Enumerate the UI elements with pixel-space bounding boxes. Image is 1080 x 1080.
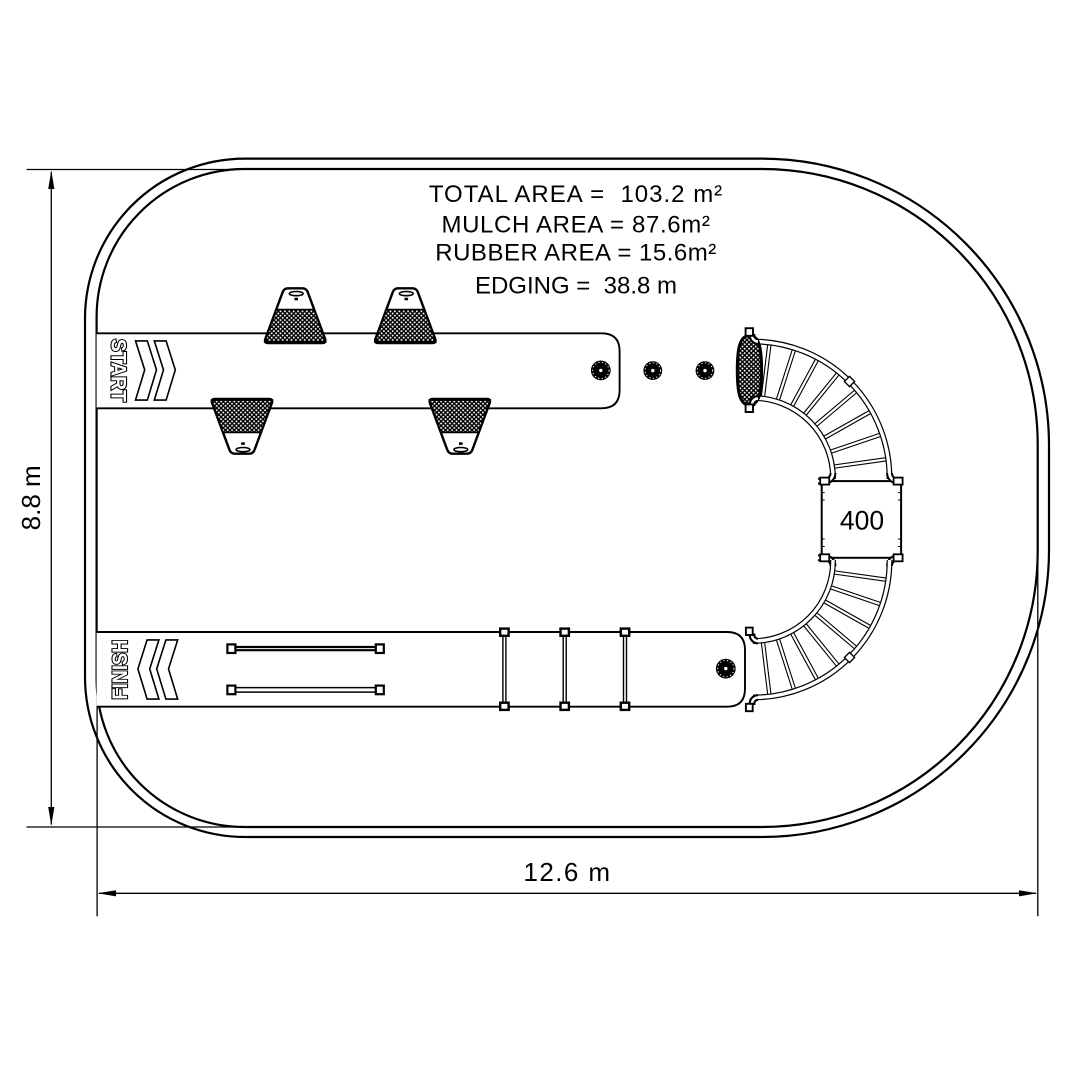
- svg-text:EDGING = 38.8 m: EDGING = 38.8 m: [475, 273, 677, 300]
- svg-text:START: START: [107, 339, 131, 402]
- svg-text:FINISH: FINISH: [108, 640, 132, 700]
- svg-text:400: 400: [840, 506, 884, 536]
- svg-text:12.6 m: 12.6 m: [524, 857, 612, 887]
- svg-text:8.8 m: 8.8 m: [16, 465, 46, 530]
- svg-text:MULCH AREA = 87.6m²: MULCH AREA = 87.6m²: [441, 212, 710, 239]
- svg-text:TOTAL AREA = 103.2 m²: TOTAL AREA = 103.2 m²: [429, 181, 723, 208]
- svg-text:RUBBER AREA = 15.6m²: RUBBER AREA = 15.6m²: [435, 240, 716, 267]
